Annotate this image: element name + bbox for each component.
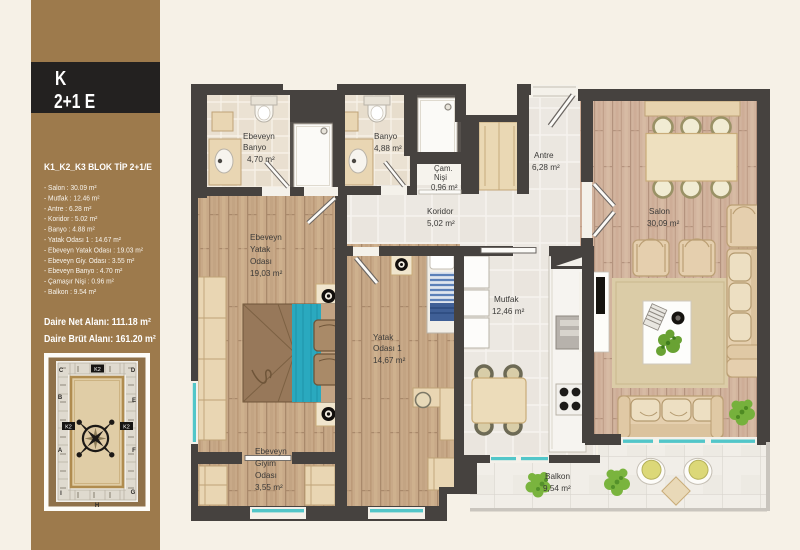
svg-text:Odası 1: Odası 1 [373, 344, 402, 353]
svg-text:H: H [95, 503, 99, 509]
svg-text:B: B [58, 395, 63, 401]
svg-text:Salon: Salon [649, 207, 670, 216]
svg-text:K2: K2 [123, 425, 130, 431]
svg-text:Banyo: Banyo [374, 132, 398, 141]
svg-text:Daire Net Alanı: 111.18 m²: Daire Net Alanı: 111.18 m² [44, 317, 151, 328]
svg-text:Odası: Odası [250, 257, 272, 266]
svg-text:0,96 m²: 0,96 m² [431, 183, 458, 192]
svg-text:- Banyo : 4.88 m²: - Banyo : 4.88 m² [44, 226, 95, 233]
svg-text:9,54 m²: 9,54 m² [543, 484, 571, 493]
svg-text:30,09 m²: 30,09 m² [647, 219, 680, 228]
svg-text:Ebeveyn: Ebeveyn [255, 447, 287, 456]
svg-text:K: K [55, 67, 66, 89]
svg-text:- Mutfak : 12.46 m²: - Mutfak : 12.46 m² [44, 195, 100, 202]
svg-text:- Ebeveyn Giy. Odası : 3.55 m²: - Ebeveyn Giy. Odası : 3.55 m² [44, 258, 135, 265]
svg-text:- Çamaşır Nişi : 0.96 m²: - Çamaşır Nişi : 0.96 m² [44, 278, 114, 285]
svg-text:K1_K2_K3 BLOK TİP 2+1/E: K1_K2_K3 BLOK TİP 2+1/E [44, 162, 152, 173]
svg-text:E: E [132, 398, 136, 404]
svg-text:- Ebeveyn Yatak Odası : 19.03: - Ebeveyn Yatak Odası : 19.03 m² [44, 247, 144, 254]
svg-text:5,02 m²: 5,02 m² [427, 219, 455, 228]
svg-text:K2: K2 [94, 367, 101, 373]
svg-text:D: D [131, 368, 136, 374]
svg-text:19,03 m²: 19,03 m² [250, 269, 283, 278]
svg-text:12,46 m²: 12,46 m² [492, 307, 525, 316]
svg-text:14,67 m²: 14,67 m² [373, 356, 406, 365]
svg-text:Antre: Antre [534, 151, 554, 160]
svg-text:4,88 m²: 4,88 m² [374, 144, 402, 153]
svg-text:Nişi: Nişi [434, 173, 447, 182]
svg-text:2+1 E: 2+1 E [54, 90, 95, 112]
svg-text:C: C [59, 368, 64, 374]
svg-text:- Yatak Odası 1 : 14.67 m²: - Yatak Odası 1 : 14.67 m² [44, 237, 122, 244]
svg-text:K2: K2 [65, 425, 72, 431]
svg-text:Ebeveyn: Ebeveyn [250, 233, 282, 242]
svg-text:- Ebeveyn Banyo : 4.70 m²: - Ebeveyn Banyo : 4.70 m² [44, 268, 123, 275]
svg-text:Koridor: Koridor [427, 207, 454, 216]
svg-text:Mutfak: Mutfak [494, 295, 519, 304]
svg-text:Banyo: Banyo [243, 143, 267, 152]
svg-text:3,55 m²: 3,55 m² [255, 483, 283, 492]
svg-text:Balkon: Balkon [545, 472, 570, 481]
svg-text:Ebeveyn: Ebeveyn [243, 132, 275, 141]
svg-text:Daire Brüt Alanı: 161.20 m²: Daire Brüt Alanı: 161.20 m² [44, 334, 156, 345]
svg-text:Giyim: Giyim [255, 459, 276, 468]
svg-text:F: F [132, 448, 136, 454]
svg-text:- Balkon : 9.54 m²: - Balkon : 9.54 m² [44, 289, 97, 296]
svg-text:4,70 m²: 4,70 m² [247, 155, 275, 164]
svg-text:Yatak: Yatak [250, 245, 271, 254]
svg-text:6,28 m²: 6,28 m² [532, 163, 560, 172]
svg-text:A: A [58, 448, 63, 454]
svg-text:Yatak: Yatak [373, 333, 394, 342]
svg-text:G: G [131, 490, 136, 496]
svg-text:Odası: Odası [255, 471, 277, 480]
svg-text:Çam.: Çam. [434, 164, 453, 173]
svg-text:- Antre : 6.28 m²: - Antre : 6.28 m² [44, 206, 92, 213]
svg-text:- Salon : 30.09 m²: - Salon : 30.09 m² [44, 185, 97, 192]
svg-text:- Koridor : 5.02 m²: - Koridor : 5.02 m² [44, 216, 98, 223]
